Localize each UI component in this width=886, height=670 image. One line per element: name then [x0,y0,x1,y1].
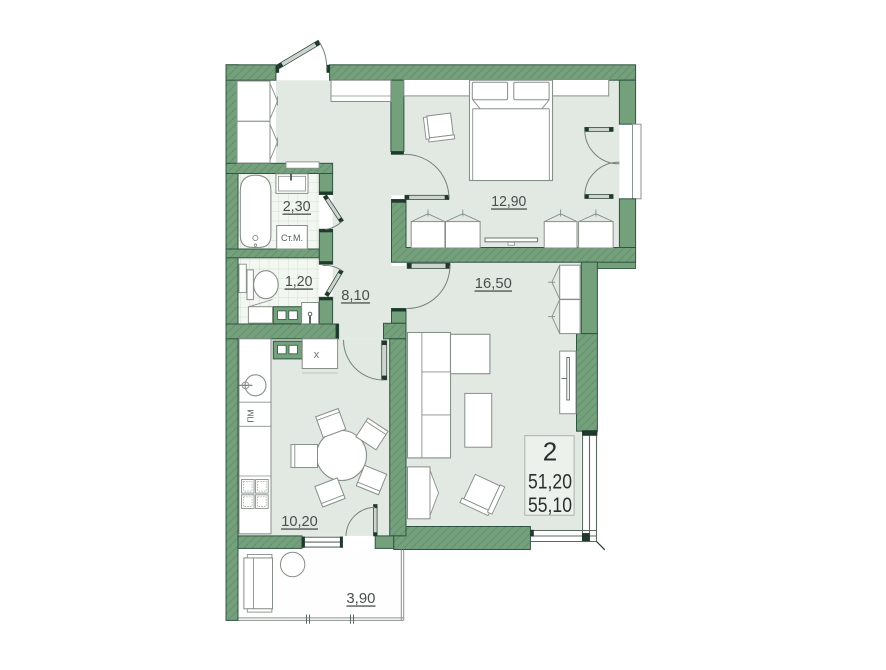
svg-text:2,30: 2,30 [283,198,311,215]
svg-text:8,10: 8,10 [341,287,370,304]
svg-text:55,10: 55,10 [528,494,572,517]
svg-text:3,90: 3,90 [346,590,375,607]
svg-text:x: x [314,349,320,361]
svg-text:2: 2 [543,437,557,467]
svg-text:51,20: 51,20 [528,470,572,493]
svg-text:16,50: 16,50 [475,275,512,292]
svg-text:Ст.М.: Ст.М. [281,233,303,243]
svg-text:10,20: 10,20 [281,513,318,530]
svg-text:1,20: 1,20 [285,273,313,290]
svg-text:ПМ: ПМ [246,409,256,422]
svg-text:12,90: 12,90 [491,193,526,210]
